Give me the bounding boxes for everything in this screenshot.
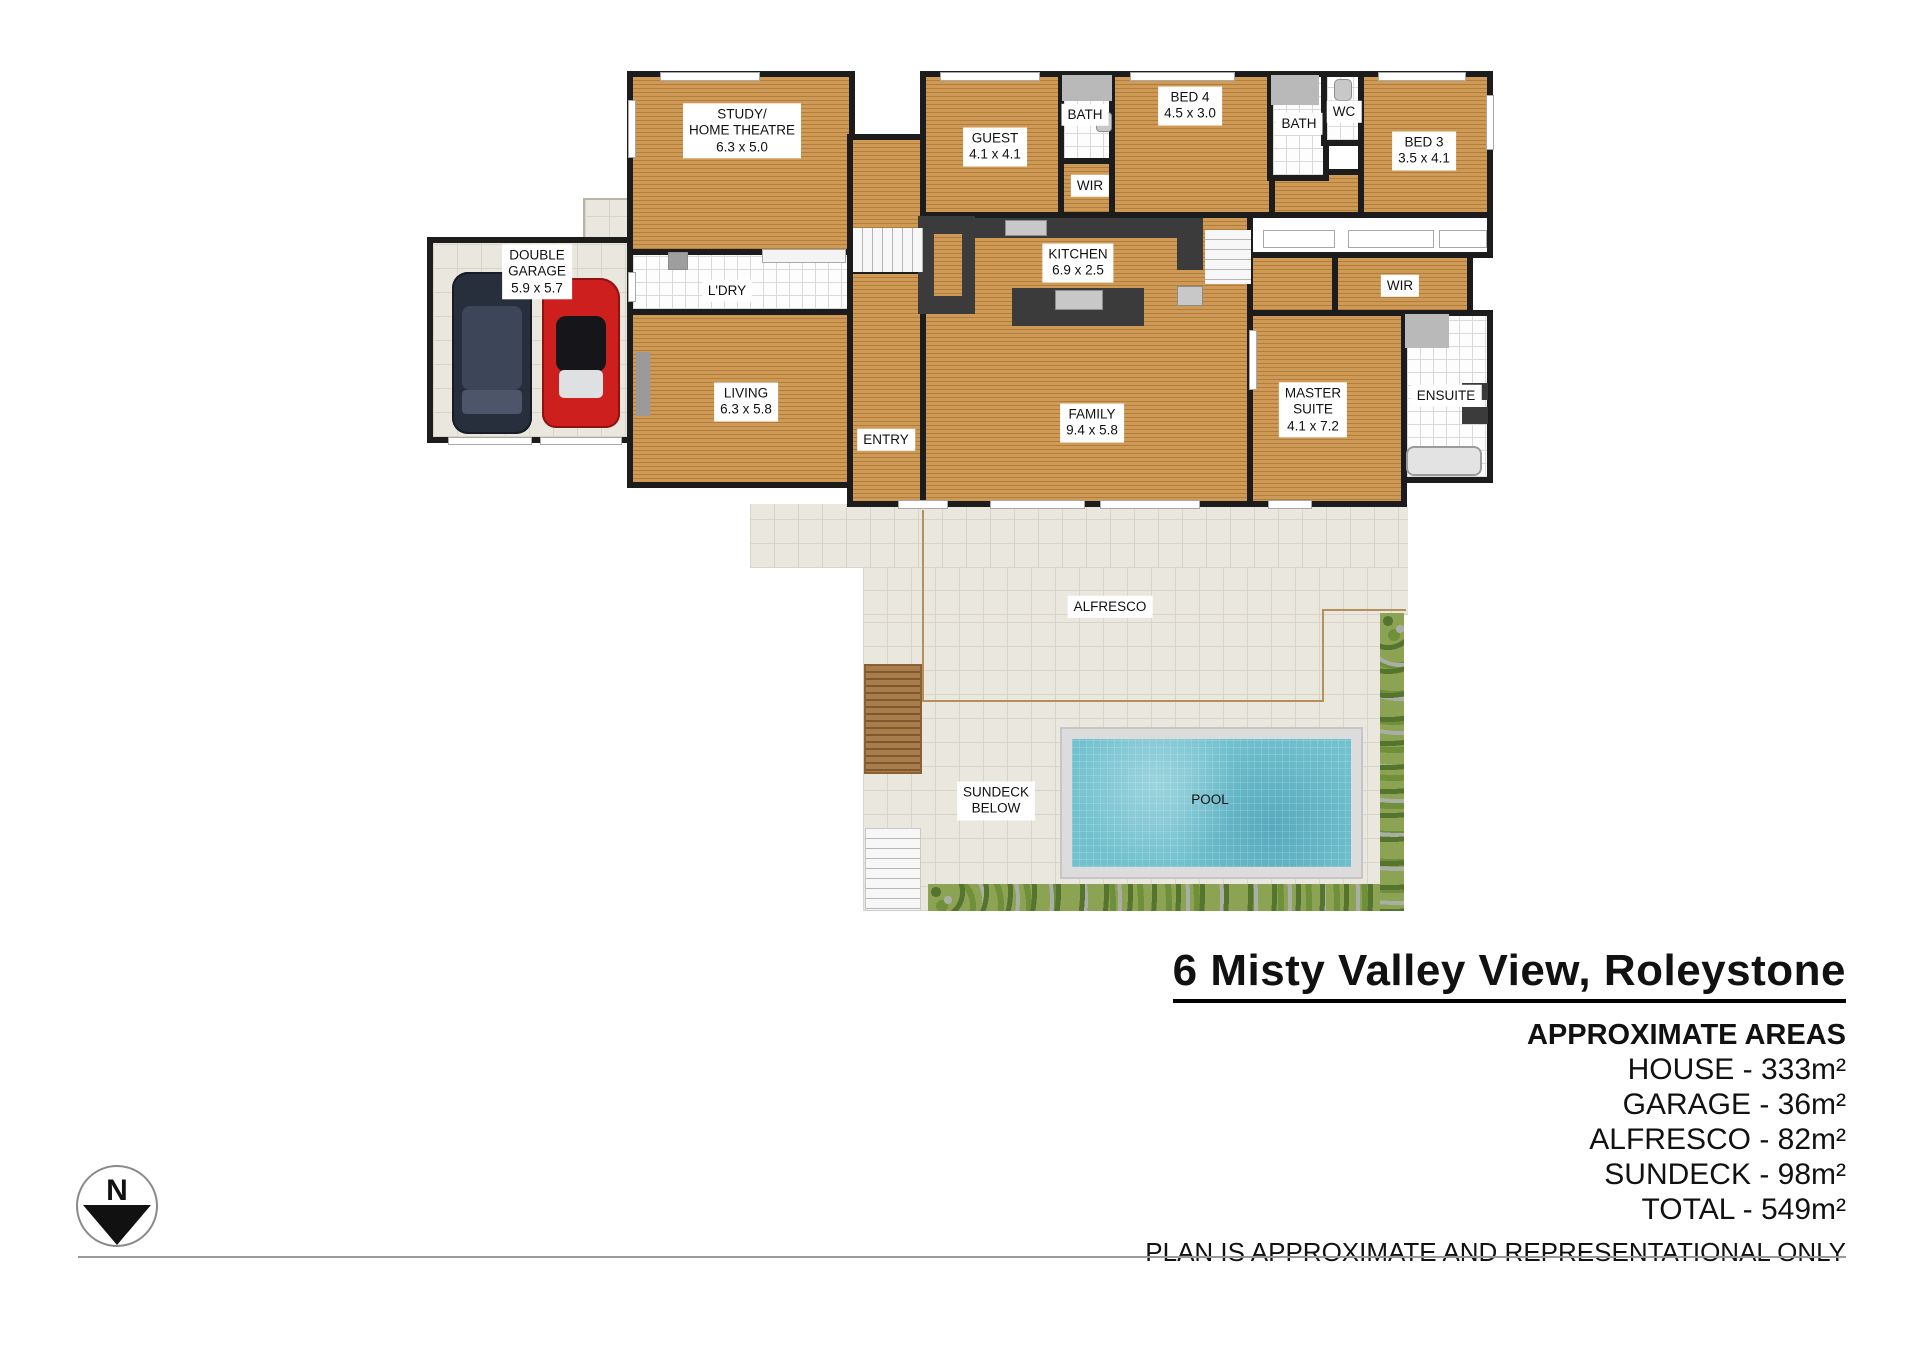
guest-bath-shower (1062, 75, 1112, 101)
window-mark (940, 72, 1040, 81)
areas-heading: APPROXIMATE AREAS (1145, 1019, 1846, 1052)
sports-car-cabin (556, 316, 606, 372)
garden-strip-bottom (928, 884, 1380, 911)
alfresco-boundary-line (1322, 609, 1406, 611)
garage-door-opening (448, 437, 532, 445)
sports-car (542, 278, 620, 428)
room-entry (847, 268, 928, 507)
compass-north-icon: N (75, 1164, 160, 1249)
kitchen-appliance (1177, 286, 1203, 306)
footer-divider-line (78, 1256, 1846, 1258)
window-mark (628, 100, 636, 158)
room-label-wir-master: WIR (1381, 275, 1419, 297)
room-label-bed4: BED 44.5 x 3.0 (1158, 87, 1222, 126)
window-mark (1378, 72, 1466, 81)
window-mark (1439, 230, 1487, 248)
room-label-bed3: BED 33.5 x 4.1 (1392, 132, 1456, 171)
compass-n-label: N (106, 1174, 128, 1207)
stairs-bed-wing (1205, 230, 1251, 284)
room-label-study: STUDY/HOME THEATRE6.3 x 5.0 (683, 103, 801, 158)
wc-toilet (1334, 79, 1352, 101)
room-label-guest: GUEST4.1 x 4.1 (963, 128, 1027, 167)
laundry-bench (762, 249, 846, 263)
alfresco-boundary-line (922, 700, 1324, 702)
alfresco-paving-top (750, 504, 1408, 568)
room-label-living: LIVING6.3 x 5.8 (714, 383, 778, 422)
room-label-ensuite: ENSUITE (1411, 385, 1482, 407)
ensuite-bathtub (1406, 446, 1482, 476)
sports-car-rear-deck (559, 370, 603, 398)
room-study (627, 71, 855, 255)
timber-deck-steps (864, 664, 922, 774)
door-opening (1268, 500, 1312, 509)
area-total: TOTAL - 549m² (1145, 1192, 1846, 1227)
room-label-pool: POOL (1185, 789, 1235, 811)
alfresco-boundary-line (922, 510, 924, 700)
window-mark (660, 72, 760, 81)
property-address: 6 Misty Valley View, Roleystone (1173, 946, 1846, 1003)
room-label-laundry: L'DRY (702, 280, 752, 302)
stairs-entry (853, 228, 923, 272)
room-master-entry (1247, 252, 1338, 318)
window-mark (1486, 95, 1494, 150)
room-label-master: MASTERSUITE4.1 x 7.2 (1279, 382, 1347, 437)
door-opening (898, 500, 948, 509)
kitchen-pantry-floor (934, 234, 962, 296)
title-block: 6 Misty Valley View, Roleystone APPROXIM… (1145, 946, 1846, 1268)
window-mark (1100, 500, 1200, 509)
room-label-kitchen: KITCHEN6.9 x 2.5 (1042, 244, 1113, 283)
window-mark (1263, 230, 1335, 248)
room-label-family: FAMILY9.4 x 5.8 (1060, 404, 1124, 443)
suv-car-windshield (462, 390, 522, 414)
window-mark (1130, 72, 1235, 81)
kitchen-bench-right (1177, 218, 1203, 270)
room-label-bath-guest: BATH (1061, 104, 1108, 126)
area-sundeck: SUNDECK - 98m² (1145, 1157, 1846, 1192)
room-label-wc: WC (1327, 101, 1362, 123)
door-opening (628, 272, 636, 302)
room-label-entry: ENTRY (857, 429, 915, 451)
ensuite-vanity (1462, 407, 1488, 424)
floorplan-image: STUDY/HOME THEATRE6.3 x 5.0 DOUBLEGARAGE… (0, 0, 1920, 1357)
outdoor-stairs (865, 828, 921, 911)
ensuite-shower (1405, 314, 1449, 348)
kitchen-sink (1005, 220, 1047, 236)
area-garage: GARAGE - 36m² (1145, 1087, 1846, 1122)
living-tv-unit (636, 352, 650, 416)
room-label-sundeck: SUNDECKBELOW (957, 782, 1035, 821)
plan-disclaimer: PLAN IS APPROXIMATE AND REPRESENTATIONAL… (1145, 1237, 1846, 1268)
area-alfresco: ALFRESCO - 82m² (1145, 1122, 1846, 1157)
room-label-bath-main: BATH (1275, 113, 1322, 135)
room-label-wir-guest: WIR (1071, 175, 1109, 197)
garage-door-opening (540, 437, 622, 445)
window-mark (1348, 230, 1434, 248)
window-mark (1249, 330, 1257, 390)
suv-car-roof (462, 306, 522, 390)
room-label-garage: DOUBLEGARAGE5.9 x 5.7 (502, 244, 572, 299)
main-bath-shower (1271, 75, 1319, 105)
room-label-alfresco: ALFRESCO (1068, 596, 1153, 618)
alfresco-boundary-line (1322, 609, 1324, 702)
laundry-washer (668, 252, 688, 270)
window-mark (990, 500, 1085, 509)
garden-strip-right (1380, 613, 1404, 911)
island-double-sink (1055, 290, 1103, 310)
area-house: HOUSE - 333m² (1145, 1052, 1846, 1087)
